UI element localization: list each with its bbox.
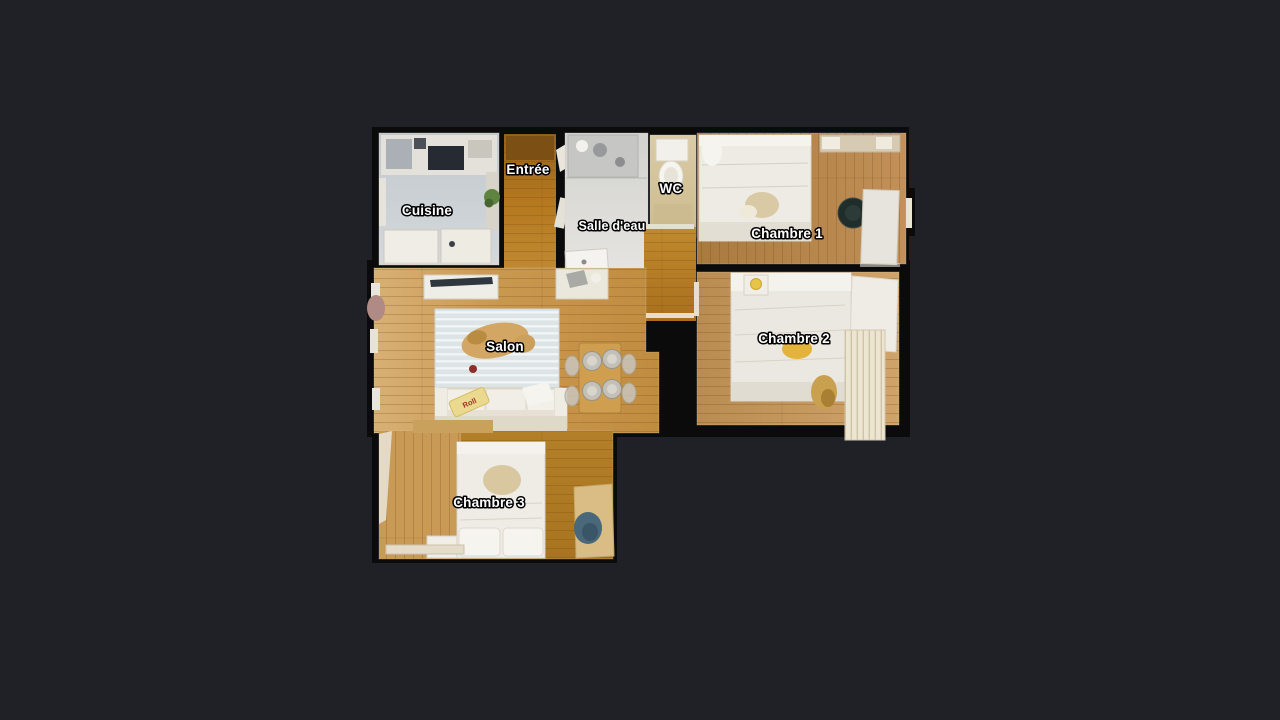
chair — [622, 383, 636, 403]
window-sill-left — [379, 178, 386, 226]
window-sill-3 — [372, 388, 380, 410]
chair — [622, 354, 636, 374]
towel — [576, 140, 588, 152]
shower-item — [593, 143, 607, 157]
room-label-chambre-2: Chambre 2 — [758, 331, 830, 346]
plant-leaf — [485, 199, 494, 208]
chair — [565, 356, 579, 376]
door-threshold-chambre-2 — [694, 282, 699, 316]
chambre-3-bed-head — [457, 442, 545, 454]
door-threshold-chambre-3 — [413, 420, 493, 433]
desk-chair-seat — [845, 205, 861, 221]
shelf-item-2 — [876, 137, 892, 149]
plate-center — [587, 356, 597, 366]
plate-center — [607, 354, 617, 364]
tan-blob-dark — [821, 389, 835, 407]
kitchen-stove — [428, 146, 464, 170]
kitchen-sink — [386, 139, 412, 169]
window-sill-2 — [370, 329, 378, 353]
plate-center — [587, 386, 597, 396]
wall-edge-highlight — [860, 263, 900, 267]
clothes-pile-2 — [739, 205, 757, 219]
desk — [861, 189, 900, 264]
toilet-cistern — [656, 139, 688, 161]
room-label-entree: Entrée — [506, 162, 550, 177]
pillow-left — [459, 528, 500, 556]
front-door-mat — [506, 136, 554, 160]
teal-chair-seat — [582, 523, 598, 541]
faucet — [582, 260, 587, 265]
table-item — [449, 241, 455, 247]
kitchen-table-1 — [384, 230, 438, 264]
door-threshold-bottom — [646, 313, 694, 318]
duvet-patch — [483, 465, 521, 495]
door-threshold-top — [646, 224, 694, 229]
red-toy — [469, 365, 477, 373]
room-label-salon: Salon — [486, 339, 524, 354]
room-label-chambre-1: Chambre 1 — [751, 226, 823, 241]
chair — [565, 386, 579, 406]
floorplan-viewer: Roll — [0, 0, 1280, 720]
sofa-cushion — [487, 390, 525, 410]
room-chambre-3[interactable] — [379, 420, 614, 559]
kitchen-counter-item — [468, 140, 492, 158]
wall-edge-highlight — [381, 262, 497, 265]
kitchen-table-2 — [441, 229, 491, 264]
pillow — [702, 138, 722, 166]
corridor-planks — [644, 227, 696, 321]
room-cuisine[interactable] — [379, 133, 500, 265]
room-chambre-1[interactable] — [697, 133, 906, 267]
mauve-chair — [367, 295, 385, 321]
plate-center — [607, 384, 617, 394]
corridor[interactable] — [644, 224, 696, 321]
low-ledge — [386, 545, 464, 554]
lamp — [751, 279, 762, 290]
shower-item-2 — [615, 157, 625, 167]
room-label-chambre-3: Chambre 3 — [453, 495, 525, 510]
room-chambre-2[interactable] — [694, 272, 899, 440]
radiator-ridges — [845, 330, 885, 440]
kitchen-small-appliance — [414, 138, 426, 149]
floorplan-svg[interactable]: Roll — [0, 0, 1280, 720]
shelf-item — [822, 137, 840, 149]
room-label-salle-deau: Salle d'eau — [578, 219, 645, 233]
room-label-wc: WC — [660, 181, 683, 196]
pillow-right — [503, 528, 543, 556]
room-label-cuisine: Cuisine — [402, 203, 452, 218]
side-table-item-2 — [591, 273, 601, 283]
